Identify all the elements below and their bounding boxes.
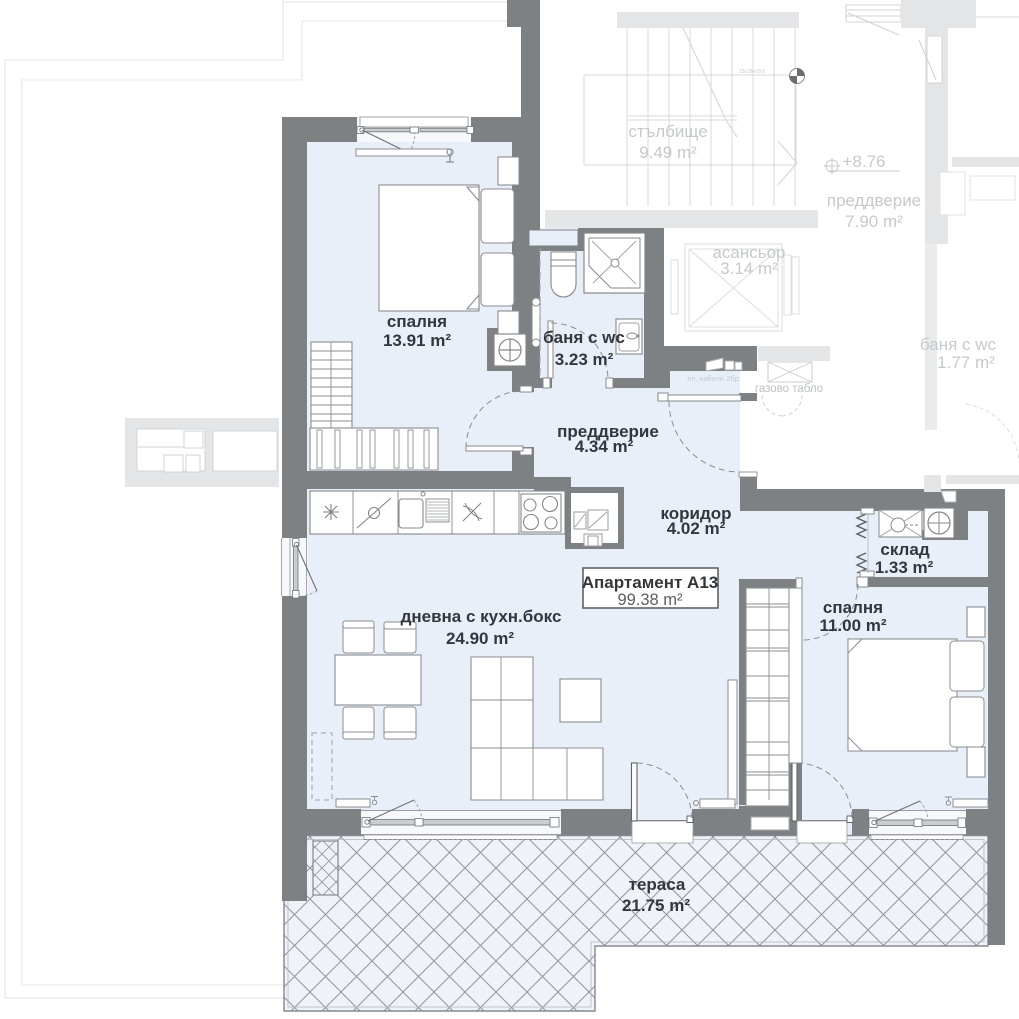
svg-text:21.75 m²: 21.75 m² xyxy=(622,896,690,915)
svg-text:ел. кабели 2бр.: ел. кабели 2бр. xyxy=(687,374,741,383)
svg-text:стълбище: стълбище xyxy=(628,122,707,141)
svg-text:преддверие: преддверие xyxy=(827,191,921,210)
svg-text:7.90 m²: 7.90 m² xyxy=(845,212,903,231)
svg-text:1.77 m²: 1.77 m² xyxy=(937,353,995,372)
svg-text:газово табло: газово табло xyxy=(755,383,823,395)
svg-text:24.90 m²: 24.90 m² xyxy=(446,629,514,648)
svg-text:3.14 m²: 3.14 m² xyxy=(720,259,778,278)
svg-text:спалня: спалня xyxy=(823,598,883,617)
svg-text:Апартамент А13: Апартамент А13 xyxy=(582,573,718,592)
svg-text:склад: склад xyxy=(880,540,929,559)
svg-text:баня с wc: баня с wc xyxy=(543,328,625,347)
svg-text:спалня: спалня xyxy=(387,312,447,331)
svg-text:тераса: тераса xyxy=(629,875,686,894)
svg-text:15x18=29.6: 15x18=29.6 xyxy=(739,69,765,75)
svg-text:+8.76: +8.76 xyxy=(842,152,885,171)
svg-text:баня с wc: баня с wc xyxy=(920,335,997,354)
svg-text:1.33 m²: 1.33 m² xyxy=(875,558,934,577)
svg-text:13.91 m²: 13.91 m² xyxy=(383,331,451,350)
svg-text:9.49 m²: 9.49 m² xyxy=(639,143,697,162)
svg-text:3.23 m²: 3.23 m² xyxy=(555,350,614,369)
svg-text:4.34 m²: 4.34 m² xyxy=(575,437,634,456)
svg-text:11.00 m²: 11.00 m² xyxy=(819,616,886,635)
svg-text:дневна с кухн.бокс: дневна с кухн.бокс xyxy=(401,607,562,626)
svg-text:99.38 m²: 99.38 m² xyxy=(617,591,683,609)
svg-text:4.02 m²: 4.02 m² xyxy=(667,519,726,538)
